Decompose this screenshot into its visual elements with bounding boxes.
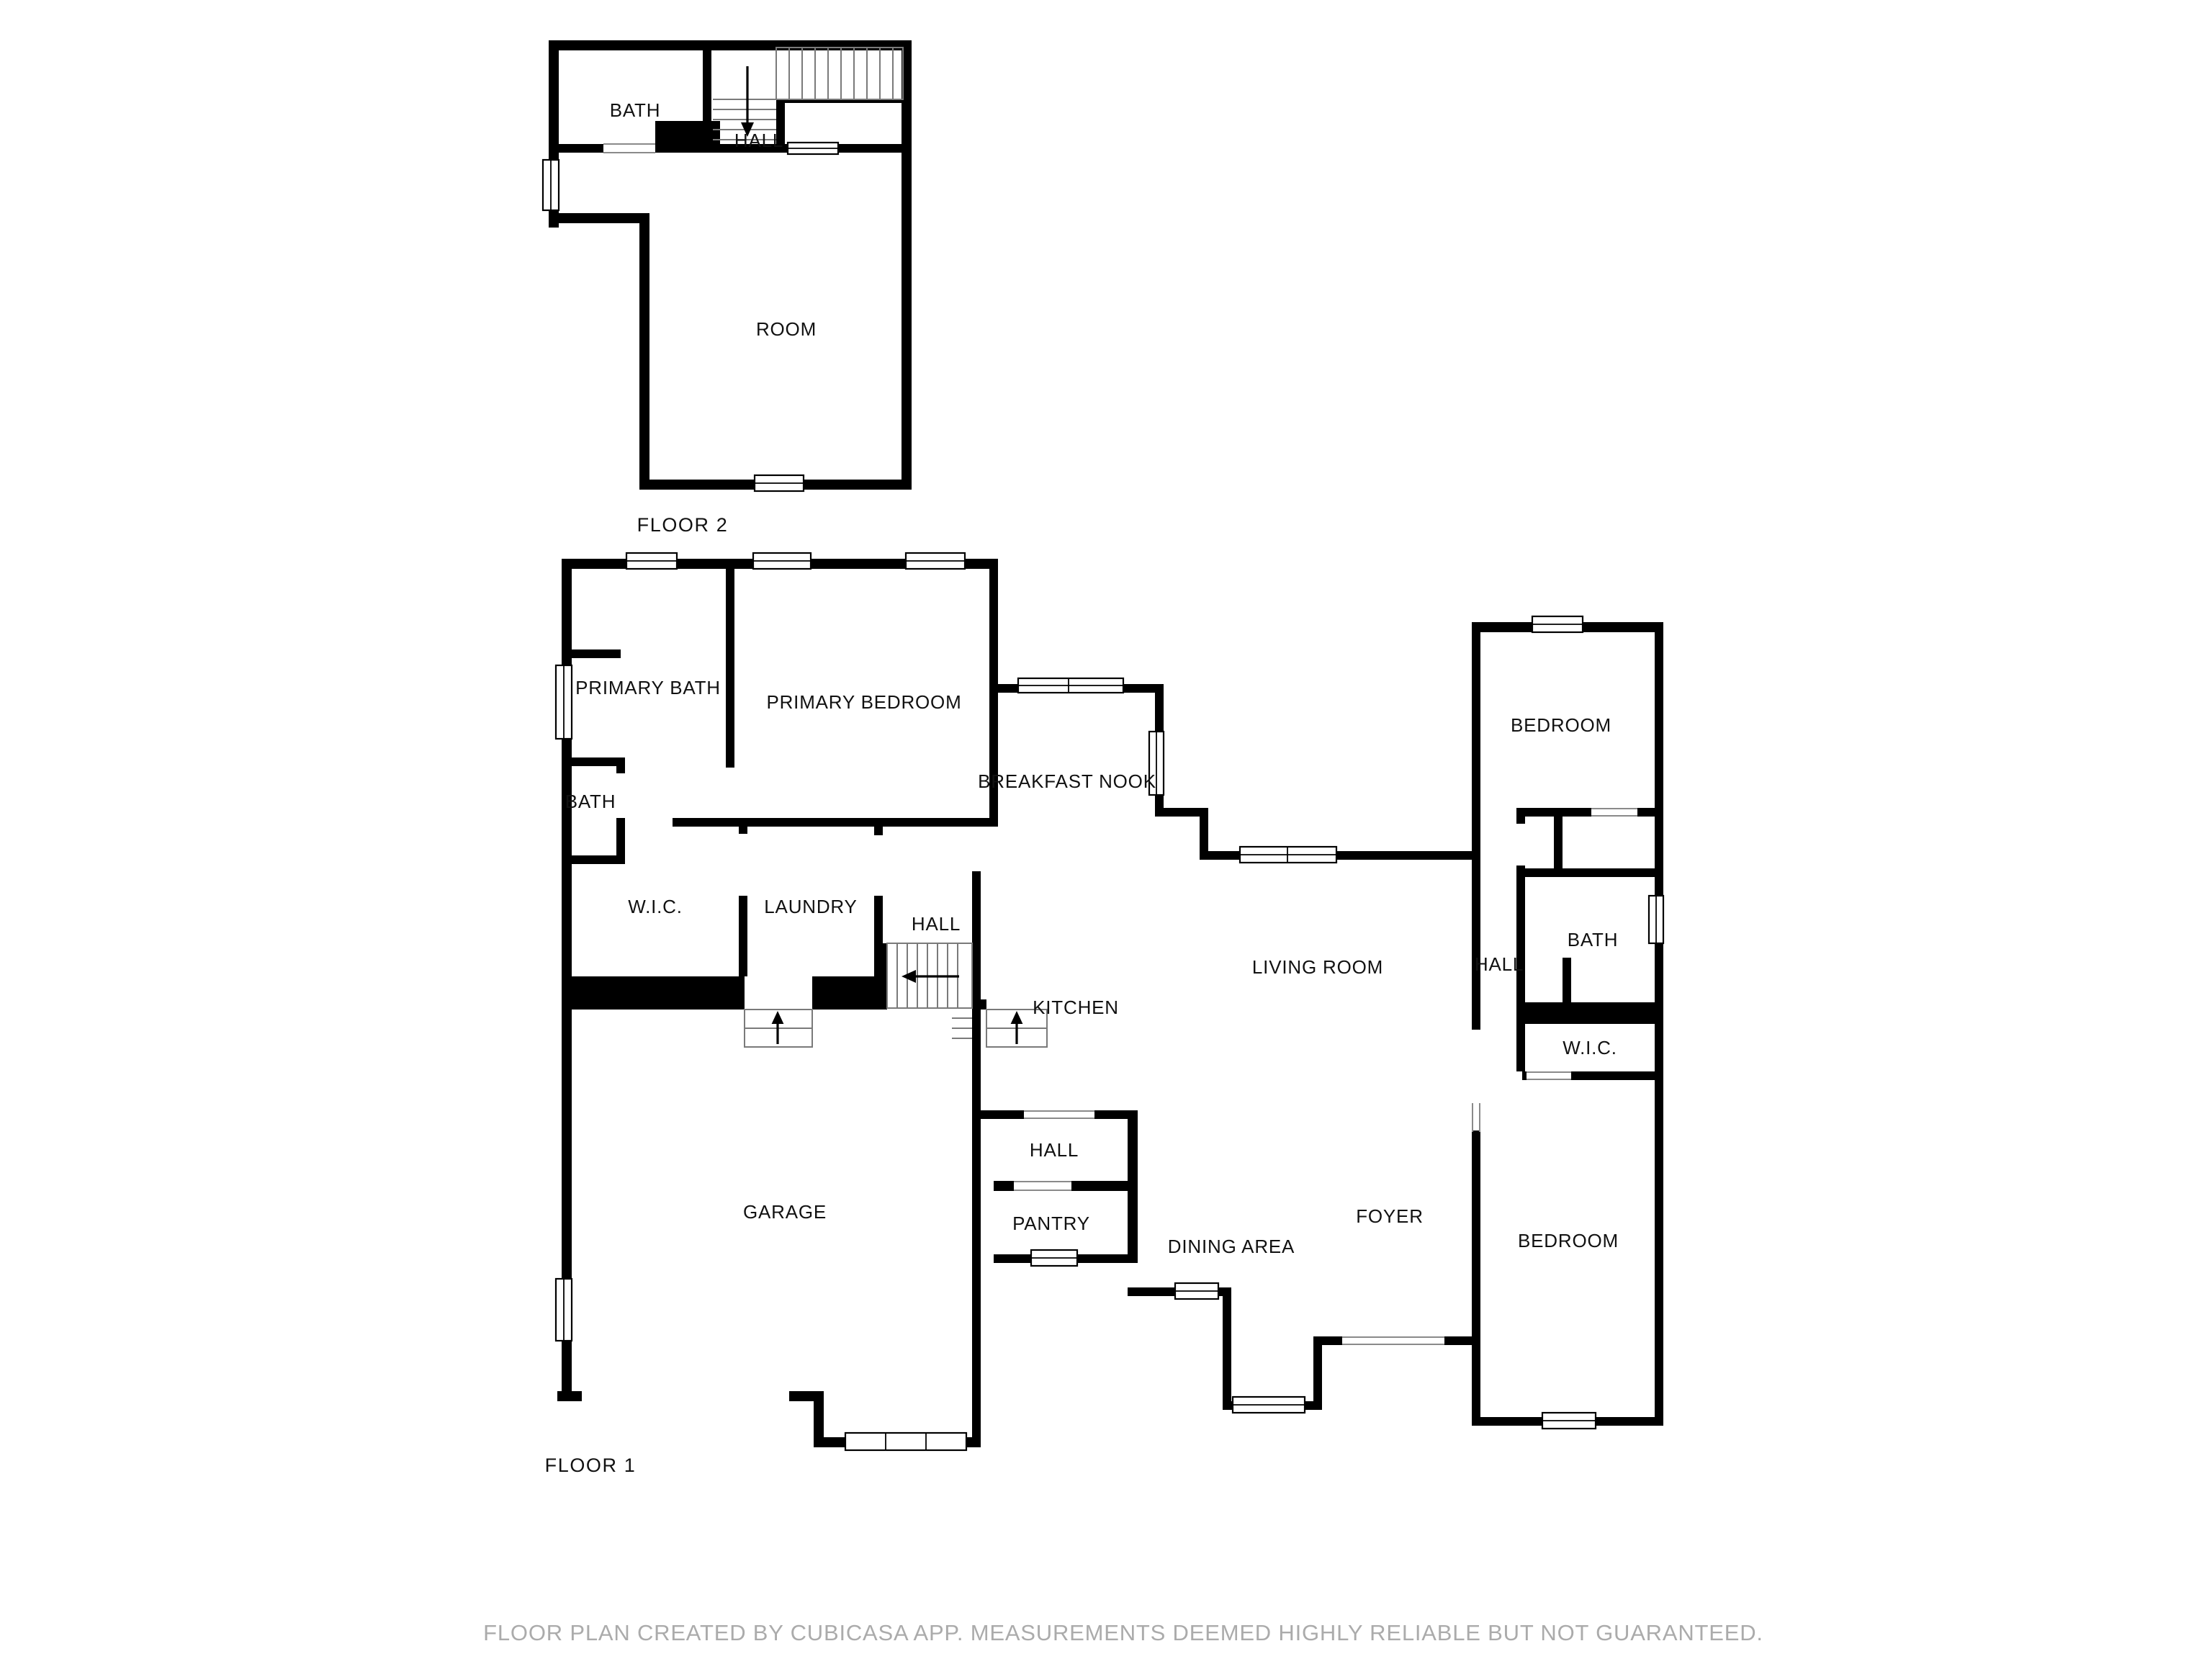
- window: [755, 475, 804, 491]
- opening-threshold: [1024, 1109, 1094, 1120]
- room-label-wic-left: W.I.C.: [628, 896, 683, 917]
- room-label-bath-2f: BATH: [610, 99, 661, 121]
- window: [1018, 678, 1123, 693]
- floor-1-plan: PRIMARY BATHPRIMARY BEDROOMBATHW.I.C.LAU…: [545, 553, 1663, 1476]
- opening-threshold: [1527, 1070, 1571, 1082]
- opening-threshold: [1014, 1179, 1071, 1192]
- floor-2-label: FLOOR 2: [637, 514, 729, 536]
- window: [1649, 896, 1663, 943]
- room-label-dining-area: DINING AREA: [1168, 1236, 1295, 1257]
- room-label-breakfast-nook: BREAKFAST NOOK: [978, 770, 1156, 792]
- garage-step-left: [745, 1010, 812, 1047]
- room-label-room-2f: ROOM: [756, 318, 817, 340]
- window: [906, 553, 965, 569]
- floor-2-windows: [543, 143, 838, 491]
- garage-door: [845, 1433, 966, 1450]
- page: { "disclaimer": "FLOOR PLAN CREATED BY C…: [0, 0, 2212, 1659]
- room-label-hall-center: HALL: [912, 913, 961, 935]
- opening-threshold: [1473, 1103, 1480, 1132]
- room-label-bedroom-top-right: BEDROOM: [1511, 714, 1611, 736]
- room-label-bath-1f-left: BATH: [565, 791, 616, 812]
- floor-2-stairs: [713, 48, 903, 140]
- window: [1532, 616, 1583, 632]
- disclaimer-text: FLOOR PLAN CREATED BY CUBICASA APP. MEAS…: [483, 1620, 1763, 1645]
- room-label-hall-right: HALL: [1475, 953, 1524, 975]
- room-label-wic-right: W.I.C.: [1563, 1037, 1617, 1058]
- room-label-foyer: FOYER: [1356, 1205, 1424, 1227]
- room-label-pantry: PANTRY: [1012, 1213, 1090, 1234]
- window: [626, 553, 677, 569]
- front-door-threshold: [1342, 1335, 1444, 1346]
- room-label-bath-right: BATH: [1568, 929, 1619, 950]
- room-label-garage: GARAGE: [743, 1201, 827, 1223]
- window: [1175, 1283, 1218, 1299]
- room-label-hall-lower: HALL: [1030, 1139, 1079, 1161]
- floor-plan-canvas: BATHHALLROOMFLOOR 2: [0, 0, 2212, 1659]
- room-label-primary-bath: PRIMARY BATH: [575, 677, 721, 698]
- window: [556, 1279, 572, 1341]
- stairs-left-arrow-icon: [902, 970, 959, 983]
- floor-1-labels: PRIMARY BATHPRIMARY BEDROOMBATHW.I.C.LAU…: [545, 677, 1619, 1476]
- room-label-hall-2f: HALL: [734, 130, 783, 151]
- room-label-bedroom-bottom-right: BEDROOM: [1518, 1230, 1619, 1251]
- floor-2-walls: [549, 40, 912, 490]
- floor-2-plan: BATHHALLROOMFLOOR 2: [543, 40, 912, 536]
- interior-window: [788, 143, 838, 154]
- room-label-kitchen: KITCHEN: [1033, 997, 1119, 1018]
- room-label-primary-bedroom: PRIMARY BEDROOM: [766, 691, 961, 713]
- stairs-down-arrow-icon: [741, 66, 754, 137]
- window: [1542, 1413, 1596, 1429]
- window: [753, 553, 811, 569]
- opening-threshold: [1591, 806, 1637, 818]
- window: [556, 665, 572, 739]
- floor-1-label: FLOOR 1: [545, 1455, 637, 1476]
- chimney-block: [655, 121, 720, 153]
- window: [1233, 1397, 1305, 1413]
- room-label-laundry: LAUNDRY: [764, 896, 857, 917]
- window: [1240, 847, 1336, 863]
- window: [543, 160, 559, 210]
- floor-1-stairs: [887, 943, 972, 1038]
- room-label-living-room: LIVING ROOM: [1252, 956, 1383, 978]
- window: [1031, 1250, 1077, 1266]
- door-threshold: [603, 143, 655, 154]
